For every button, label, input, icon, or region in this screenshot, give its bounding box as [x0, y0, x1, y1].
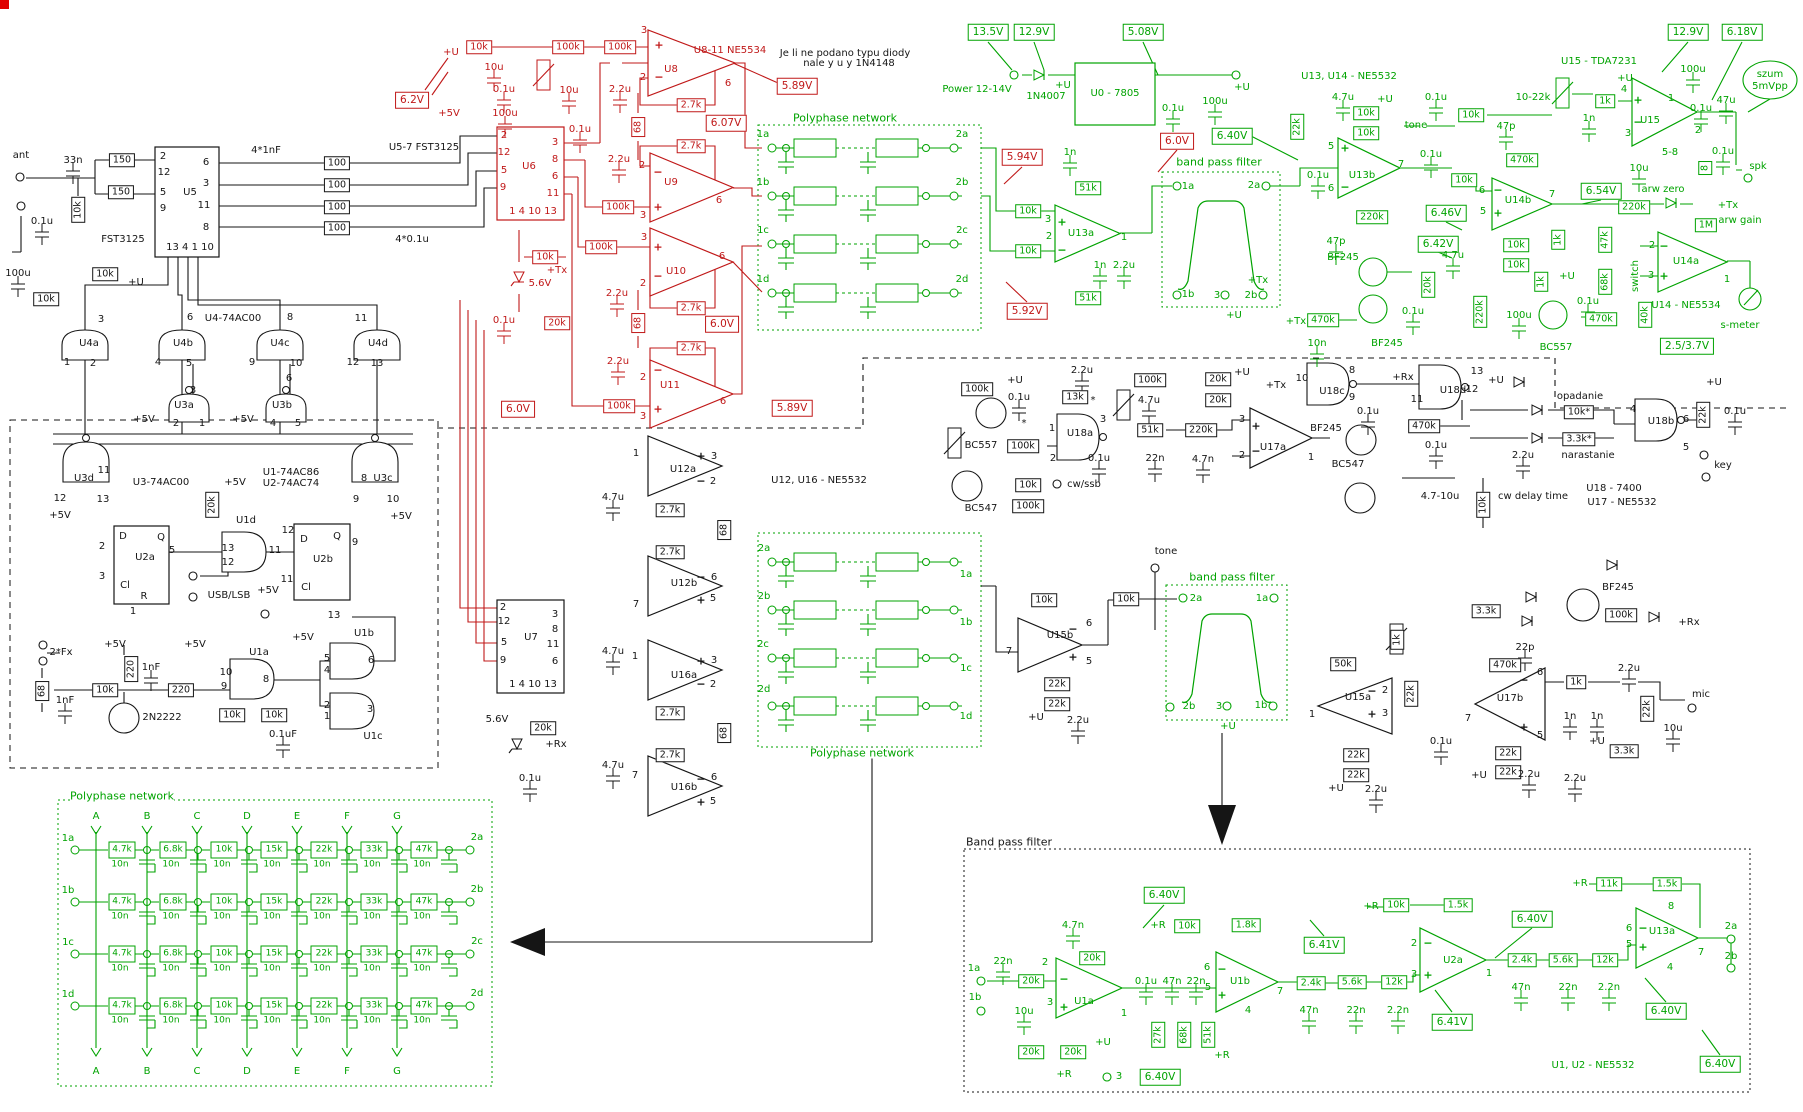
schematic-label: U3d [74, 474, 94, 484]
component-value-box: 20k [1205, 372, 1231, 386]
schematic-label: 3 [203, 179, 209, 189]
schematic-label: 3 [367, 705, 373, 715]
polyphase-resistor: 22k [316, 898, 333, 907]
schematic-label: + [1423, 970, 1432, 981]
component-value-box: 1M [1695, 218, 1717, 232]
schematic-label: +U [1589, 737, 1605, 747]
polyphase-resistor: 15k [266, 898, 283, 907]
component-value-box: 2.4k [1508, 953, 1537, 967]
schematic-label: 2d [956, 275, 969, 285]
schematic-label: + [1659, 271, 1668, 282]
schematic-label: 1 4 10 13 [509, 680, 557, 690]
schematic-label: 10u [1014, 1007, 1033, 1017]
polyphase-output-label: 2d [471, 989, 484, 999]
opamp-U10 [650, 228, 733, 296]
schematic-label: arw zero [1641, 185, 1684, 195]
schematic-label: 3 [98, 315, 104, 325]
schematic-label: 12 [498, 617, 511, 627]
schematic-label: * [1091, 396, 1096, 406]
schematic-label: + [1493, 208, 1502, 219]
voltage-callout: 6.41V [1304, 937, 1345, 954]
schematic-label: U4b [173, 339, 193, 349]
schematic-label: 12 [222, 558, 235, 568]
polyphase-tap-label: D [243, 812, 251, 822]
polyphase-cap: 10n [263, 861, 280, 870]
schematic-label: +U [1007, 376, 1023, 386]
schematic-label: 3 [552, 138, 558, 148]
component-value-box: 40k [1638, 302, 1652, 328]
schematic-label: +U [1234, 83, 1250, 93]
transistor-BF245 [1359, 258, 1387, 286]
schematic-label: 3 [640, 211, 646, 221]
polyphase-cap: 10n [111, 913, 128, 922]
schematic-label: U2-74AC74 [263, 479, 319, 489]
component-value-box: 3.3k [1610, 744, 1639, 758]
schematic-label: nale y u y 1N4148 [803, 59, 895, 69]
polyphase-cap: 10n [363, 913, 380, 922]
schematic-label: 2 [639, 161, 645, 171]
component-value-box: 100k [604, 40, 636, 54]
schematic-label: − [654, 72, 663, 83]
schematic-label: 2.2u [606, 289, 628, 299]
component-value-box: 10k [1015, 204, 1041, 218]
component-value-box: 8 [1698, 161, 1712, 175]
schematic-label: 0.1u [1690, 104, 1712, 114]
schematic-label: − [653, 271, 662, 282]
polyphase-resistor: 33k [366, 950, 383, 959]
schematic-label: U3b [272, 401, 292, 411]
port [1053, 480, 1061, 488]
port [1173, 291, 1181, 299]
component-value-box: 1k [1551, 230, 1565, 250]
component-value-box: 68 [631, 313, 645, 333]
polyphase-cap: 10n [363, 965, 380, 974]
section-bandpass-mini-box-1 [1162, 172, 1280, 307]
port [261, 610, 269, 618]
schematic-label: 22n [993, 957, 1012, 967]
polyphase-cap: 10n [263, 913, 280, 922]
component-value-box: 2.7k [677, 341, 706, 355]
schematic-label: 1 [64, 358, 70, 368]
component-value-box: 100k [602, 200, 634, 214]
voltage-callout: 5.94V [1002, 149, 1043, 166]
polyphase-tap-label: E [294, 812, 300, 822]
schematic-label: 12 [347, 358, 360, 368]
schematic-label: 6 [711, 573, 717, 583]
schematic-label: U2a [135, 553, 155, 563]
component-value-box: 51k [1201, 1022, 1215, 1048]
schematic-label: + [653, 242, 662, 253]
schematic-label: 4*1nF [251, 146, 281, 156]
schematic-label: U3a [174, 401, 194, 411]
schematic-label: 4 [324, 666, 330, 676]
component-value-box: 100k [585, 240, 617, 254]
schematic-label: 2b [956, 178, 969, 188]
polyphase-resistor: 4.7k [112, 1002, 132, 1011]
component-value-box: 100k [1007, 439, 1039, 453]
component-value-box: 22k [1044, 697, 1070, 711]
polyphase-resistor: 33k [366, 846, 383, 855]
schematic-label: 4.7u [1442, 251, 1464, 261]
schematic-label: tone [1155, 547, 1178, 557]
schematic-label: 1 [1724, 275, 1730, 285]
schematic-label: 5 [324, 654, 330, 664]
component-value-box: 68 [631, 117, 645, 137]
schematic-label: − [653, 365, 662, 376]
schematic-label: U13, U14 - NE5532 [1301, 72, 1397, 82]
schematic-label: 6 [725, 79, 731, 89]
port [1727, 935, 1735, 943]
polyphase-resistor: 22k [316, 846, 333, 855]
voltage-callout: 6.18V [1722, 24, 1763, 41]
schematic-label: 2 [1050, 454, 1056, 464]
voltage-callout: 6.40V [1140, 1069, 1181, 1086]
schematic-label: 22n [1558, 983, 1577, 993]
schematic-label: 0.1u [493, 85, 515, 95]
schematic-label: − [696, 774, 705, 785]
schematic-label: 1 [1121, 1009, 1127, 1019]
port [17, 202, 25, 210]
schematic-label: 3 [641, 26, 647, 36]
component-value-box: 2.4k [1297, 976, 1326, 990]
schematic-label: 0.1u [1402, 307, 1424, 317]
component-value-box: 150 [108, 185, 134, 199]
schematic-label: +R [1572, 879, 1587, 889]
schematic-label: 2 [640, 279, 646, 289]
schematic-label: − [696, 572, 705, 583]
polyphase-tap-label: C [194, 1067, 201, 1077]
schematic-label: 6 [1328, 184, 1334, 194]
schematic-label: U1, U2 - NE5532 [1552, 1061, 1635, 1071]
polyphase-cap: 10n [313, 861, 330, 870]
port [1173, 182, 1181, 190]
port [1270, 594, 1278, 602]
schematic-label: 1 [1668, 94, 1674, 104]
schematic-label: 1d [757, 275, 770, 285]
voltage-callout: 6.46V [1426, 205, 1467, 222]
polyphase-tap-label: B [144, 812, 151, 822]
schematic-label: 47p [1326, 237, 1345, 247]
opamp-U17a [1250, 408, 1312, 468]
schematic-label: 2 [1042, 958, 1048, 968]
schematic-label: − [1367, 686, 1376, 697]
voltage-callout: 6.41V [1432, 1014, 1473, 1031]
section-title: band pass filter [1189, 572, 1274, 583]
component-value-box: 2.7k [656, 503, 685, 517]
transistor-BF245 [1359, 295, 1387, 323]
port [977, 977, 985, 985]
schematic-label: 5 [160, 188, 166, 198]
schematic-label: 3 [1382, 709, 1388, 719]
schematic-label: U1a [1074, 997, 1094, 1007]
schematic-label: U3-74AC00 [133, 478, 189, 488]
polyphase-output-label: 2c [471, 937, 483, 947]
schematic-label: D [300, 535, 308, 545]
component-value-box: 3.3k* [1562, 432, 1595, 446]
schematic-label: 0.1u [1712, 147, 1734, 157]
schematic-label: szum [1757, 70, 1784, 80]
schematic-label: 4 [1667, 963, 1673, 973]
component-value-box: 1.5k [1444, 898, 1473, 912]
component-value-box: 20k [1018, 1045, 1044, 1059]
schematic-label: 0.1u [1088, 454, 1110, 464]
schematic-label: 10n [1307, 339, 1326, 349]
polyphase-tap-label: E [294, 1067, 300, 1077]
component-value-box: 11k [1596, 877, 1622, 891]
schematic-label: 6 [368, 656, 374, 666]
schematic-label: 100u [492, 109, 517, 119]
component-value-box: 2.7k [677, 139, 706, 153]
schematic-label: 12 [282, 526, 295, 536]
schematic-label: 3 [711, 656, 717, 666]
diode-icon [1666, 198, 1676, 208]
schematic-label: 5 [1480, 207, 1486, 217]
schematic-label: 5-8 [1662, 148, 1678, 158]
schematic-label: 10 [290, 359, 303, 369]
schematic-label: 6 [286, 374, 292, 384]
schematic-label: 2 [1239, 451, 1245, 461]
schematic-label: 12 [498, 148, 511, 158]
component-value-box: 13k [1062, 390, 1088, 404]
schematic-label: U4-74AC00 [205, 314, 261, 324]
schematic-label: FST3125 [101, 235, 144, 245]
component-value-box: 100 [324, 178, 350, 192]
schematic-label: 3 [1045, 215, 1051, 225]
schematic-label: + [1638, 942, 1647, 953]
transistor-BC547 [1345, 483, 1375, 513]
schematic-label: 1n [1583, 114, 1596, 124]
schematic-label: USB/LSB [208, 591, 251, 601]
schematic-label: U7 [524, 633, 538, 643]
component-value-box: 10k [1015, 478, 1041, 492]
schematic-label: − [1217, 964, 1226, 975]
polyphase-resistor: 33k [366, 898, 383, 907]
schematic-label: 2 [324, 701, 330, 711]
schematic-label: 5mVpp [1752, 82, 1788, 92]
schematic-label: U1b [354, 629, 374, 639]
schematic-label: narastanie [1561, 451, 1614, 461]
schematic-label: 13 [222, 544, 235, 554]
component-value-box: 3.3k [1472, 604, 1501, 618]
schematic-label: 1n [1064, 148, 1077, 158]
port [189, 572, 197, 580]
polyphase-input-label: 1c [62, 938, 74, 948]
schematic-label: U13a [1068, 229, 1094, 239]
schematic-label: U13b [1349, 171, 1375, 181]
component-value-box: 10k [92, 683, 118, 697]
schematic-label: BC557 [1540, 343, 1573, 353]
polyphase-resistor: 22k [316, 950, 333, 959]
component-value-box: 1k [1595, 94, 1615, 108]
schematic-label: +R [1214, 1051, 1229, 1061]
schematic-label: 1a [1256, 594, 1269, 604]
schematic-label: 9 [221, 682, 227, 692]
schematic-label: 6 [716, 196, 722, 206]
schematic-label: 6 [187, 313, 193, 323]
schematic-label: 12 [158, 168, 171, 178]
schematic-label: 2 [160, 152, 166, 162]
voltage-callout: 5.89V [772, 400, 813, 417]
schematic-label: 2.2u [1512, 451, 1534, 461]
schematic-label: 10 [220, 668, 233, 678]
polyphase-tap-label: A [93, 1067, 100, 1077]
schematic-label: 2 [1411, 939, 1417, 949]
schematic-label: +Tx [1248, 276, 1268, 286]
schematic-label: 5 [1683, 443, 1689, 453]
component-value-box: 10k [1113, 592, 1139, 606]
schematic-label: 1d [960, 712, 973, 722]
schematic-label: 2 [90, 359, 96, 369]
schematic-label: 2a [1725, 922, 1738, 932]
schematic-label: U18b [1648, 417, 1674, 427]
schematic-label: 13 [328, 611, 341, 621]
schematic-label: +5V [224, 478, 246, 488]
schematic-label: +U [1471, 771, 1487, 781]
schematic-label: 6 [1626, 924, 1632, 934]
polyphase-resistor: 47k [416, 898, 433, 907]
schematic-label: 8 [1349, 366, 1355, 376]
section-title: Band pass filter [966, 837, 1052, 848]
schematic-label: 13 4 1 10 [166, 243, 214, 253]
schematic-label: 2 [710, 680, 716, 690]
schematic-label: * [1022, 419, 1027, 429]
component-value-box: 470k [1408, 419, 1440, 433]
voltage-callout: 2.5/3.7V [1660, 338, 1714, 355]
schematic-label: 2a [1190, 594, 1203, 604]
schematic-label: 5 [710, 594, 716, 604]
schematic-label: − [696, 679, 705, 690]
schematic-label: 1 [199, 419, 205, 429]
schematic-label: R [141, 592, 148, 602]
component-value-box: 20k [1018, 974, 1044, 988]
schematic-label: 4 [270, 419, 276, 429]
schematic-label: 7 [1398, 160, 1404, 170]
schematic-label: 6 [719, 252, 725, 262]
schematic-label: 2b [1183, 702, 1196, 712]
component-value-box: 20k [530, 721, 556, 735]
component-value-box: 470k [1506, 153, 1538, 167]
schematic-label: 0.1u [1425, 93, 1447, 103]
port [1269, 702, 1277, 710]
component-value-box: 12k [1592, 953, 1618, 967]
schematic-label: +R [1150, 921, 1165, 931]
schematic-label: 0.1u [493, 316, 515, 326]
polyphase-resistor: 15k [266, 1002, 283, 1011]
polyphase-resistor: 4.7k [112, 898, 132, 907]
schematic-label: +U [1488, 376, 1504, 386]
schematic-label: +5V [390, 512, 412, 522]
schematic-label: 6 [1537, 668, 1543, 678]
polyphase-cap: 10n [313, 913, 330, 922]
voltage-callout: 6.40V [1144, 887, 1185, 904]
schematic-label: + [653, 404, 662, 415]
schematic-label: + [653, 202, 662, 213]
schematic-label: − [1057, 245, 1066, 256]
schematic-label: 3 [190, 386, 196, 396]
polyphase-cap: 10n [162, 965, 179, 974]
polyphase-resistor: 10k [216, 898, 233, 907]
schematic-label: +U [1234, 368, 1250, 378]
schematic-label: 4.7n [1192, 455, 1214, 465]
schematic-label: 0.1u [1008, 393, 1030, 403]
port [1179, 594, 1187, 602]
schematic-label: 1b [1255, 701, 1268, 711]
schematic-label: 2.2u [1113, 261, 1135, 271]
schematic-label: +U [1095, 1038, 1111, 1048]
schematic-label: U1b [1230, 977, 1250, 987]
component-value-box: 470k [1489, 658, 1521, 672]
polyphase-cap: 10n [213, 1017, 230, 1026]
schematic-label: 47n [1511, 983, 1530, 993]
schematic-label: 6 [720, 397, 726, 407]
port [1103, 1073, 1111, 1081]
component-value-box: 10k [92, 267, 118, 281]
component-value-box: 68 [717, 723, 731, 743]
polyphase-cap: 10n [111, 965, 128, 974]
schematic-label: 9 [500, 183, 506, 193]
component-value-box: 20k [1060, 1045, 1086, 1059]
component-value-box: 10k [1353, 106, 1379, 120]
polyphase-cap: 10n [111, 1017, 128, 1026]
schematic-label: 2.2n [1387, 1006, 1409, 1016]
schematic-label: 3 [99, 572, 105, 582]
component-value-box: 10k [1458, 108, 1484, 122]
schematic-label: 47p [1496, 122, 1515, 132]
schematic-label: 2.2n [1598, 983, 1620, 993]
section-bandpass-mini-box-2 [1166, 585, 1287, 720]
component-value-box: 10k [1383, 898, 1409, 912]
schematic-label: 1b [960, 618, 973, 628]
schematic-label: + [696, 595, 705, 606]
schematic-label: 11 [198, 201, 211, 211]
schematic-label: 2c [956, 226, 968, 236]
component-value-box: 68 [35, 681, 49, 701]
schematic-label: 2 [640, 73, 646, 83]
component-value-box: 10k [261, 708, 287, 722]
schematic-label: 1 [130, 607, 136, 617]
schematic-label: U10 [666, 267, 686, 277]
schematic-label: 0.1u [1135, 977, 1157, 987]
polyphase-resistor: 47k [416, 1002, 433, 1011]
voltage-callout: 5.92V [1007, 303, 1048, 320]
schematic-label: 2 [99, 542, 105, 552]
schematic-label: arw gain [1718, 216, 1761, 226]
schematic-label: 8 [361, 474, 367, 484]
schematic-label: − [1059, 974, 1068, 985]
port [1221, 291, 1229, 299]
schematic-label: 0.1u [1425, 441, 1447, 451]
polyphase-cap: 10n [162, 1017, 179, 1026]
port [1727, 964, 1735, 972]
component-value-box: 22k [1404, 681, 1418, 707]
schematic-canvas: Polyphase networkPolyphase networkPolyph… [0, 0, 1803, 1112]
schematic-label: +U [1220, 722, 1236, 732]
schematic-label: +U [1028, 713, 1044, 723]
schematic-label: +Tx [547, 266, 567, 276]
schematic-label: 1n [1564, 712, 1577, 722]
schematic-label: 1c [757, 226, 769, 236]
schematic-label: 5 [1328, 142, 1334, 152]
voltage-callout: 6.07V [706, 115, 747, 132]
schematic-label: 4 [1630, 405, 1636, 415]
diode-icon [1526, 592, 1536, 602]
polyphase-resistor: 10k [216, 1002, 233, 1011]
voltage-callout: 6.54V [1581, 183, 1622, 200]
schematic-label: 2.2u [1564, 774, 1586, 784]
port [1223, 702, 1231, 710]
polyphase-input-label: 1d [62, 990, 75, 1000]
schematic-label: 1a [968, 964, 981, 974]
